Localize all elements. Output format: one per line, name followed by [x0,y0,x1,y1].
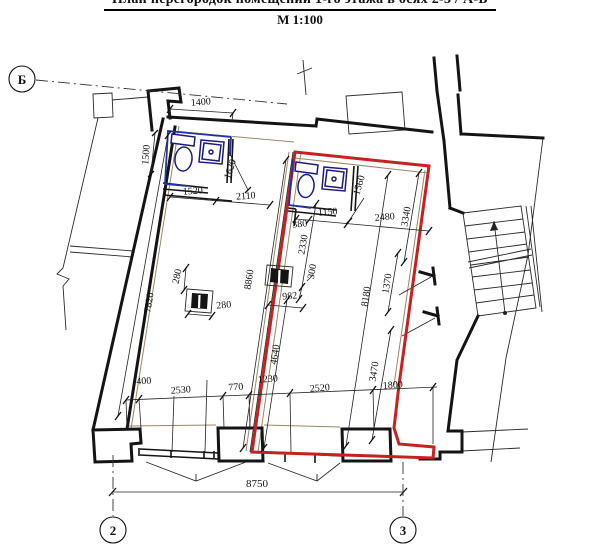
dim-1620: 1620 [222,158,239,180]
drawing-sheet: План перегородок помещений 1-го этажа в … [0,0,600,553]
dim-1500: 1500 [140,144,153,165]
drawing-title-row: План перегородок помещений 1-го этажа в … [0,0,600,11]
dim-280-v: 280 [171,268,185,285]
dim-1800: 1800 [382,379,403,391]
dim-2480: 2480 [374,211,395,224]
dim-3340: 3340 [399,206,413,228]
floor-plan-canvas: 1400 1500 1520 2110 1620 1150 380 2480 1… [0,0,600,553]
dim-400: 400 [136,375,152,387]
staircase [463,206,540,316]
dim-1230: 1230 [257,373,278,385]
toilet-fixture-2 [295,162,318,174]
dim-280-h: 280 [216,299,232,311]
room2-red-outline [250,152,434,458]
toilet-bowl-2 [297,174,315,199]
sink-drain-1 [209,150,213,154]
stair-arrow-start [503,311,507,315]
toilet-fixture-1 [171,134,195,146]
dim-7820: 7820 [143,292,157,313]
dim-1520: 1520 [182,185,203,197]
dim-8750: 8750 [246,478,269,490]
drawing-scale-row: М 1:100 [0,11,600,29]
toilet-bowl-1 [174,146,193,172]
dim-8860: 8860 [243,269,257,290]
dim-2330: 2330 [296,234,310,256]
dim-1370: 1370 [381,273,395,294]
dim-2530: 2530 [170,384,191,396]
dim-1400: 1400 [190,96,211,108]
axis-markers: Б 2 3 [9,66,416,543]
drawing-title: План перегородок помещений 1-го этажа в … [104,0,496,11]
dim-8180: 8180 [360,286,374,307]
dim-4640: 4640 [269,344,283,365]
dim-3470: 3470 [368,361,382,382]
axis-label-2: 2 [110,523,117,538]
dim-2520: 2520 [309,382,330,394]
dim-1150: 1150 [318,206,339,219]
dim-2110: 2110 [236,190,256,202]
dim-300: 300 [306,263,319,280]
axis-label-b: Б [18,72,27,87]
bathroom-1 [165,131,231,186]
dim-380: 380 [292,218,308,230]
column-1 [185,289,213,313]
axis-label-3: 3 [400,523,407,538]
dim-770: 770 [228,381,244,393]
drawing-scale: М 1:100 [277,12,323,27]
sink-drain-2 [332,177,336,181]
dim-982: 982 [282,290,298,302]
